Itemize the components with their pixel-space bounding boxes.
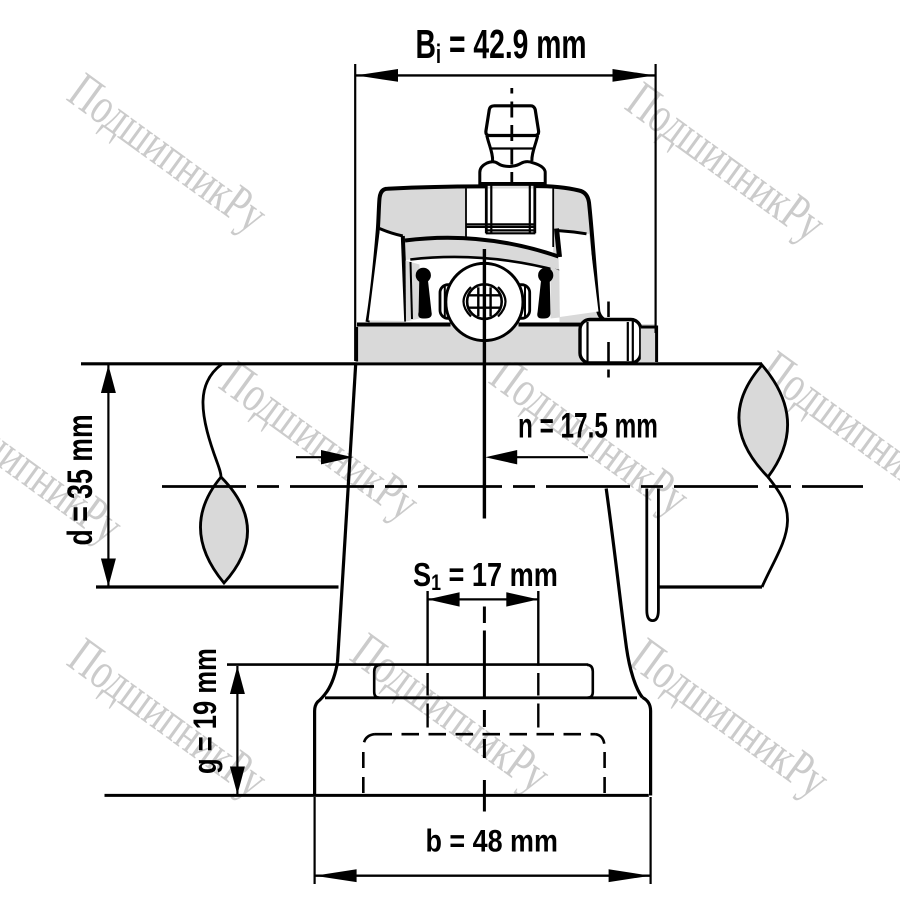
- svg-text:d = 35 mm: d = 35 mm: [61, 414, 100, 545]
- svg-text:Bi = 42.9 mm: Bi = 42.9 mm: [416, 22, 587, 69]
- svg-text:b = 48 mm: b = 48 mm: [426, 824, 558, 859]
- svg-text:n = 17.5 mm: n = 17.5 mm: [518, 406, 658, 446]
- svg-text:g = 19 mm: g = 19 mm: [188, 648, 223, 774]
